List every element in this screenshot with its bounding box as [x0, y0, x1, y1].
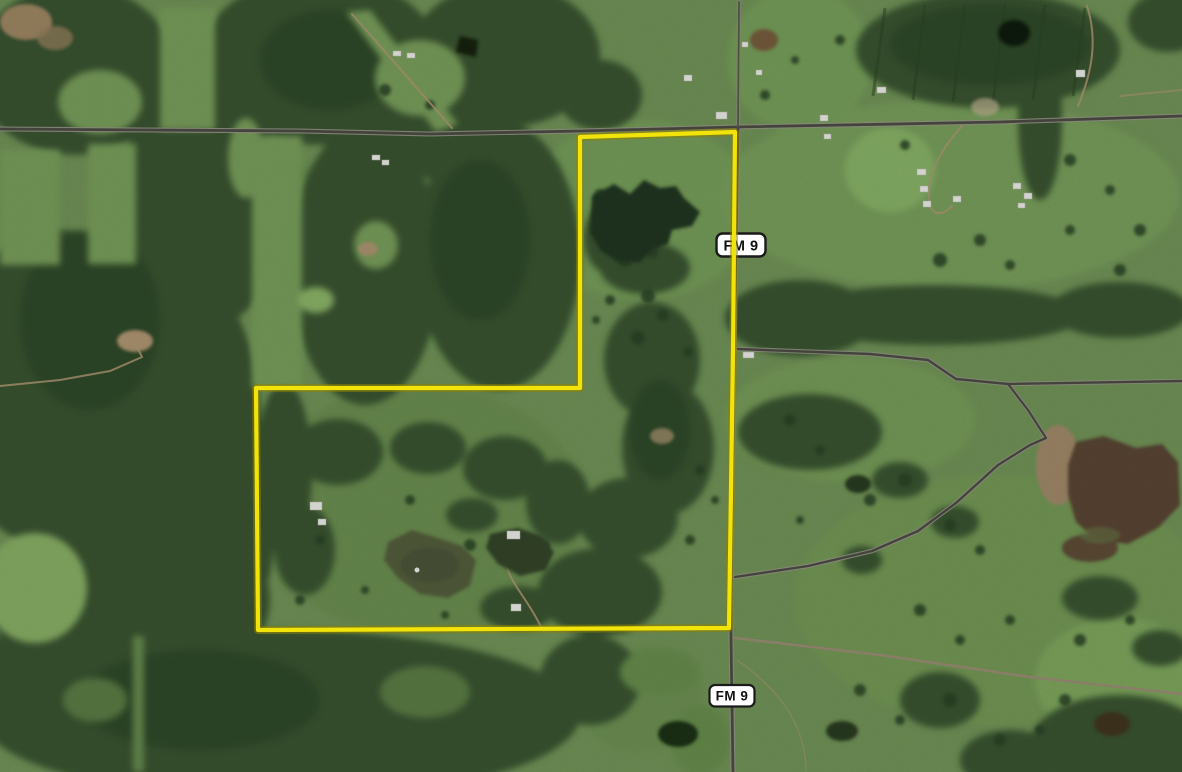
aerial-imagery: FM 9 FM 9 [0, 0, 1182, 772]
photo-grain-overlay [0, 0, 1182, 772]
route-shield-fm9-south: FM 9 [710, 685, 755, 707]
route-shield-fm9-north-label: FM 9 [723, 239, 758, 255]
route-shield-fm9-south-label: FM 9 [716, 689, 749, 704]
route-shield-fm9-north: FM 9 [717, 234, 766, 257]
satellite-map-canvas[interactable]: FM 9 FM 9 [0, 0, 1182, 772]
